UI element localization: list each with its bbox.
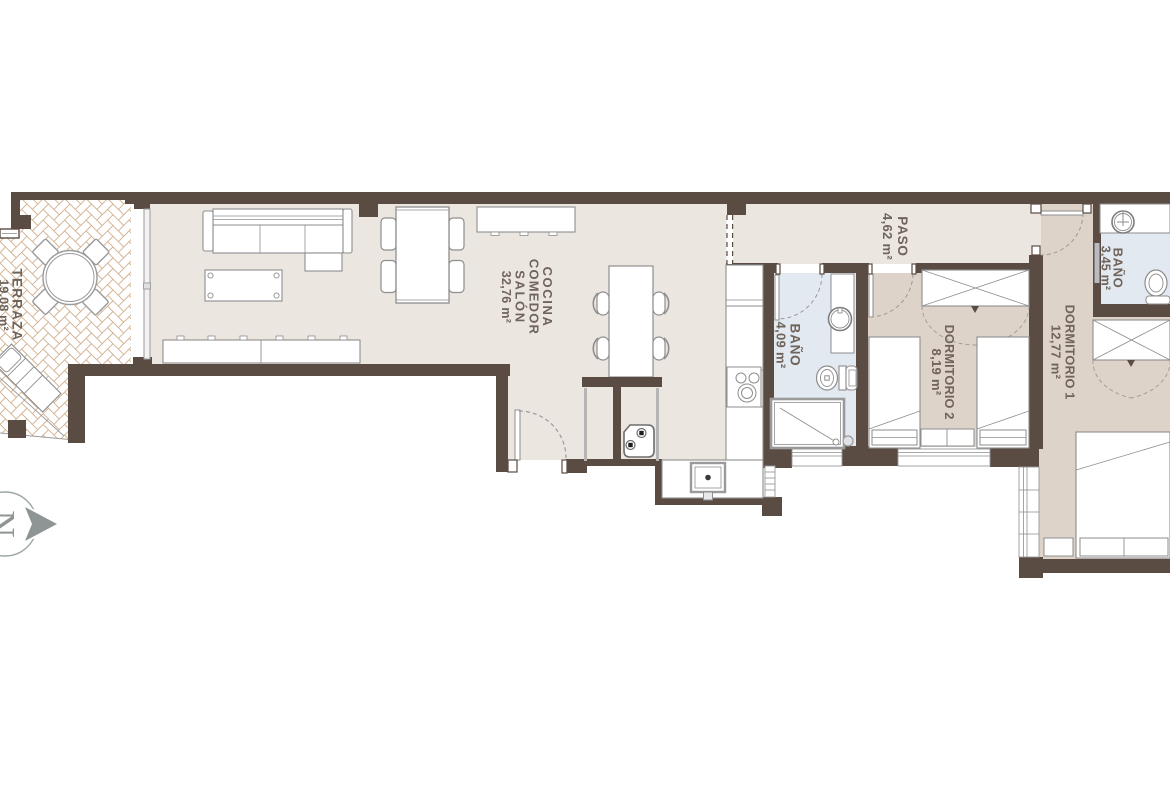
svg-text:4,09 m²: 4,09 m² xyxy=(774,322,789,369)
svg-text:DORMITORIO 1: DORMITORIO 1 xyxy=(1063,305,1078,400)
svg-text:TERRAZA: TERRAZA xyxy=(10,269,25,342)
svg-text:SALÓN: SALÓN xyxy=(513,270,528,324)
svg-text:4,62 m²: 4,62 m² xyxy=(880,213,895,260)
svg-text:BAÑO: BAÑO xyxy=(788,324,803,367)
svg-text:PASO: PASO xyxy=(895,216,910,256)
svg-text:3,45 m²: 3,45 m² xyxy=(1099,246,1113,290)
svg-text:32,76 m²: 32,76 m² xyxy=(499,271,513,323)
svg-text:12,77 m²: 12,77 m² xyxy=(1049,325,1064,380)
svg-text:19,08 m²: 19,08 m² xyxy=(0,279,11,331)
svg-text:N: N xyxy=(0,510,22,537)
svg-text:8,19 m²: 8,19 m² xyxy=(929,349,944,396)
